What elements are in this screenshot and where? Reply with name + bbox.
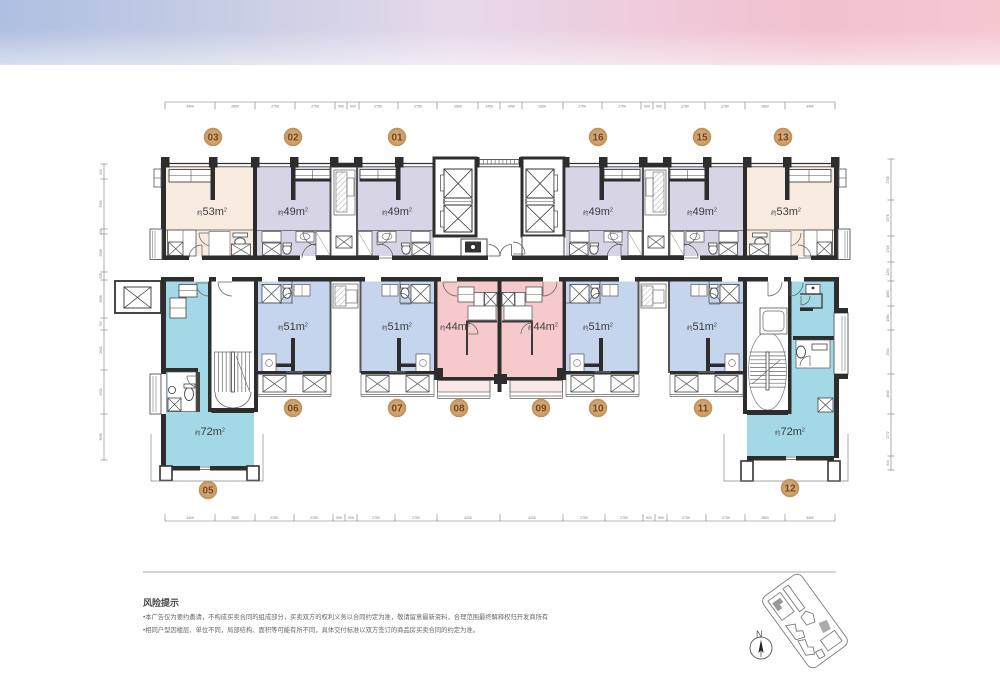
svg-text:2750: 2750 [721, 104, 729, 108]
svg-text:2750: 2750 [578, 104, 586, 108]
svg-text:16: 16 [592, 132, 604, 143]
svg-text:05: 05 [202, 485, 214, 496]
svg-text:900: 900 [338, 104, 344, 108]
svg-text:2750: 2750 [271, 104, 279, 108]
svg-text:2750: 2750 [414, 104, 422, 108]
svg-text:900: 900 [658, 516, 664, 520]
svg-text:3400: 3400 [186, 516, 194, 520]
svg-text:2750: 2750 [580, 516, 588, 520]
svg-text:2508: 2508 [99, 249, 103, 256]
svg-text:2640: 2640 [886, 390, 890, 397]
svg-text:13: 13 [777, 132, 789, 143]
svg-text:2750: 2750 [270, 516, 278, 520]
svg-text:1650: 1650 [886, 290, 890, 297]
svg-text:528: 528 [99, 273, 103, 279]
svg-text:01: 01 [391, 132, 403, 143]
svg-text:风险提示: 风险提示 [143, 597, 179, 608]
svg-text:2750: 2750 [620, 516, 628, 520]
svg-text:1254: 1254 [886, 268, 890, 275]
svg-text:2904: 2904 [99, 388, 103, 395]
svg-text:900: 900 [644, 104, 650, 108]
svg-text:2706: 2706 [886, 176, 890, 183]
svg-text:4200: 4200 [528, 516, 536, 520]
svg-text:900: 900 [336, 516, 342, 520]
svg-text:15: 15 [696, 132, 708, 143]
svg-text:792: 792 [99, 321, 103, 327]
svg-text:900: 900 [348, 516, 354, 520]
svg-text:07: 07 [391, 403, 403, 414]
svg-text:1450: 1450 [507, 104, 515, 108]
svg-text:990: 990 [99, 169, 103, 175]
svg-text:11: 11 [698, 403, 709, 414]
svg-text:2600: 2600 [454, 104, 462, 108]
svg-text:2600: 2600 [538, 104, 546, 108]
svg-text:2800: 2800 [761, 516, 769, 520]
svg-text:08: 08 [453, 403, 465, 414]
svg-text:900: 900 [656, 104, 662, 108]
svg-text:2772: 2772 [886, 431, 890, 438]
svg-text:330: 330 [99, 229, 103, 235]
svg-text:03: 03 [207, 132, 219, 143]
svg-text:1584: 1584 [886, 314, 890, 321]
svg-text:3036: 3036 [99, 433, 103, 440]
svg-text:12: 12 [784, 483, 796, 494]
svg-text:02: 02 [287, 132, 299, 143]
svg-text:2750: 2750 [311, 104, 319, 108]
svg-text:2750: 2750 [374, 104, 382, 108]
svg-text:2750: 2750 [372, 516, 380, 520]
svg-text:1450: 1450 [485, 104, 493, 108]
svg-text:2750: 2750 [310, 516, 318, 520]
svg-text:•相同户型因楼层、单位不同，局部结构、面积等可能有所不同，具: •相同户型因楼层、单位不同，局部结构、面积等可能有所不同，具体交付标准以双方签订… [143, 625, 479, 634]
svg-text:900: 900 [350, 104, 356, 108]
svg-text:3300: 3300 [99, 200, 103, 207]
svg-text:3400: 3400 [806, 516, 814, 520]
svg-text:10: 10 [592, 403, 604, 414]
svg-text:2800: 2800 [231, 104, 239, 108]
svg-text:1716: 1716 [886, 245, 890, 252]
svg-text:3400: 3400 [186, 104, 194, 108]
svg-text:2800: 2800 [231, 516, 239, 520]
svg-text:2750: 2750 [722, 516, 730, 520]
svg-text:N: N [756, 629, 763, 639]
svg-text:2750: 2750 [618, 104, 626, 108]
svg-text:06: 06 [287, 403, 299, 414]
svg-text:2376: 2376 [886, 214, 890, 221]
svg-text:900: 900 [646, 516, 652, 520]
svg-text:2750: 2750 [412, 516, 420, 520]
svg-text:•本广告仅为要约邀请，不构成买卖合同的组成部分，买卖双方的权: •本广告仅为要约邀请，不构成买卖合同的组成部分，买卖双方的权利义务以合同约定为准… [143, 612, 548, 621]
svg-text:2750: 2750 [682, 516, 690, 520]
svg-text:09: 09 [535, 403, 547, 414]
svg-text:2508: 2508 [99, 295, 103, 302]
svg-text:4200: 4200 [464, 516, 472, 520]
svg-text:3400: 3400 [806, 104, 814, 108]
svg-text:2750: 2750 [681, 104, 689, 108]
svg-text:2800: 2800 [761, 104, 769, 108]
svg-text:2904: 2904 [886, 348, 890, 355]
svg-text:2640: 2640 [99, 346, 103, 353]
svg-text:924: 924 [886, 460, 890, 466]
